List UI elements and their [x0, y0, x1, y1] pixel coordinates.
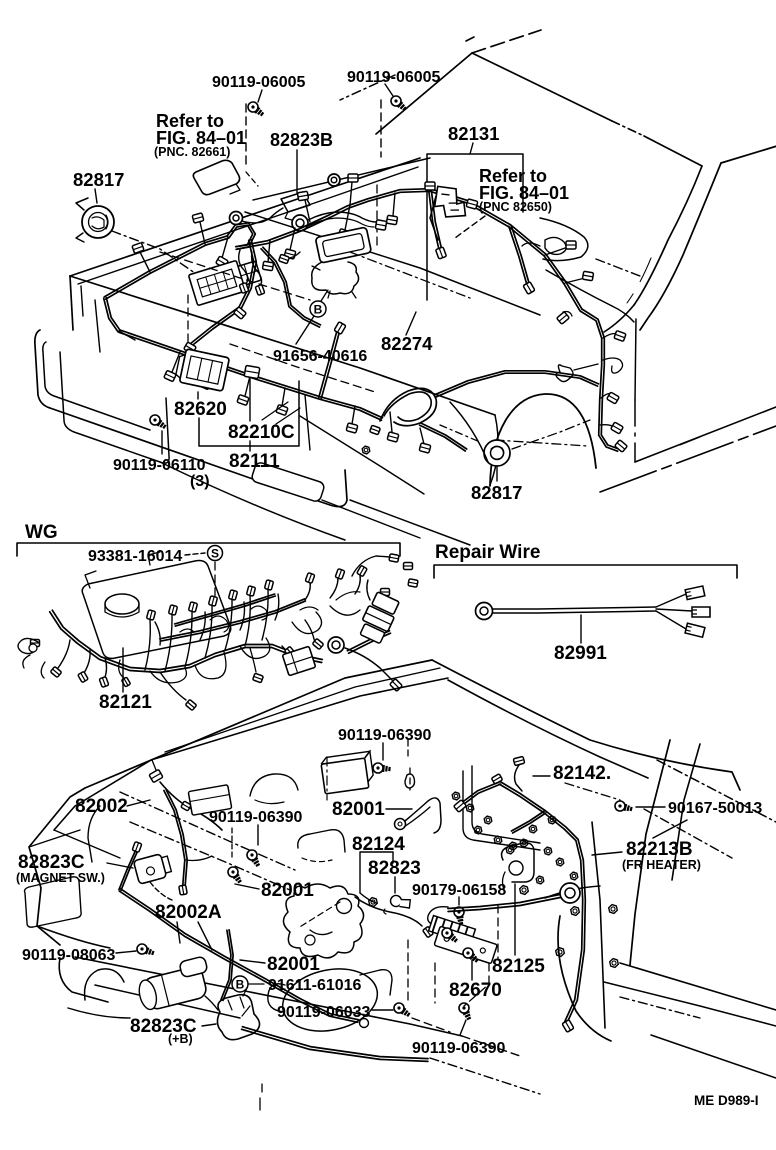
svg-text:82142.: 82142.	[553, 763, 611, 784]
svg-text:82001: 82001	[332, 799, 385, 820]
svg-text:90119-06390: 90119-06390	[412, 1040, 506, 1057]
svg-text:90119-06005: 90119-06005	[347, 69, 441, 86]
svg-text:82620: 82620	[174, 399, 227, 420]
svg-text:82210C: 82210C	[228, 422, 295, 443]
svg-text:90119-06390: 90119-06390	[209, 809, 303, 826]
svg-text:82001: 82001	[261, 880, 314, 901]
svg-text:(FR HEATER): (FR HEATER)	[622, 858, 701, 872]
svg-text:91656-40616: 91656-40616	[273, 348, 367, 365]
svg-text:82002: 82002	[75, 796, 128, 817]
svg-text:(MAGNET SW.): (MAGNET SW.)	[16, 871, 105, 885]
svg-text:82111: 82111	[229, 451, 280, 472]
svg-text:82121: 82121	[99, 692, 152, 713]
svg-text:Repair Wire: Repair Wire	[435, 542, 540, 563]
svg-text:B: B	[314, 303, 323, 317]
svg-text:82274: 82274	[381, 333, 433, 354]
svg-text:82213B: 82213B	[626, 839, 693, 860]
svg-text:90119-06005: 90119-06005	[212, 74, 306, 91]
svg-text:82001: 82001	[267, 954, 320, 975]
svg-text:WG: WG	[25, 522, 58, 543]
svg-text:90167-50013: 90167-50013	[668, 800, 762, 817]
svg-text:82131: 82131	[448, 123, 499, 144]
svg-text:82991: 82991	[554, 643, 607, 664]
svg-text:90119-06390: 90119-06390	[338, 727, 432, 744]
svg-text:(3): (3)	[190, 473, 210, 490]
svg-text:90119-06110: 90119-06110	[113, 457, 206, 474]
svg-text:90119-08063: 90119-08063	[22, 947, 116, 964]
svg-text:82670: 82670	[449, 980, 502, 1001]
svg-text:82125: 82125	[492, 956, 545, 977]
svg-text:(+B): (+B)	[168, 1032, 193, 1046]
svg-text:B: B	[236, 978, 245, 992]
svg-text:82817: 82817	[73, 169, 124, 190]
svg-text:93381-16014: 93381-16014	[88, 548, 182, 565]
svg-text:S: S	[211, 547, 219, 561]
svg-text:ME D989-I: ME D989-I	[694, 1093, 759, 1108]
svg-text:82823C: 82823C	[18, 852, 85, 873]
svg-text:82823B: 82823B	[270, 130, 333, 150]
svg-text:(PNC. 82661): (PNC. 82661)	[154, 145, 230, 159]
svg-text:(PNC 82650): (PNC 82650)	[479, 200, 552, 214]
svg-text:82817: 82817	[471, 482, 522, 503]
svg-text:82823: 82823	[368, 858, 421, 879]
